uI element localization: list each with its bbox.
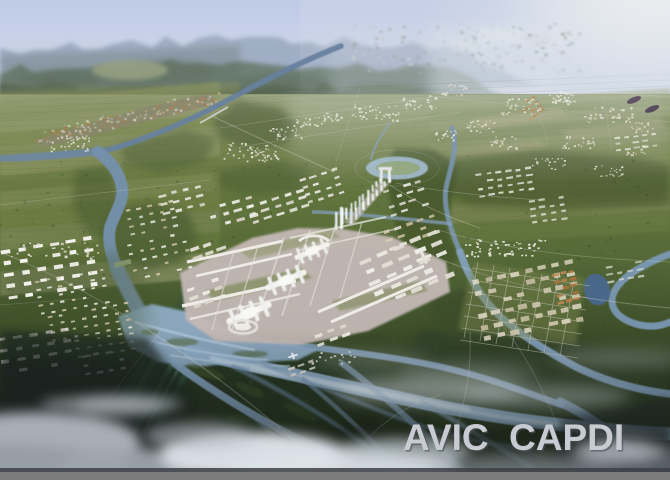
svg-text:AVIC: AVIC [403,417,489,458]
svg-text:CAPDI: CAPDI [509,417,624,458]
